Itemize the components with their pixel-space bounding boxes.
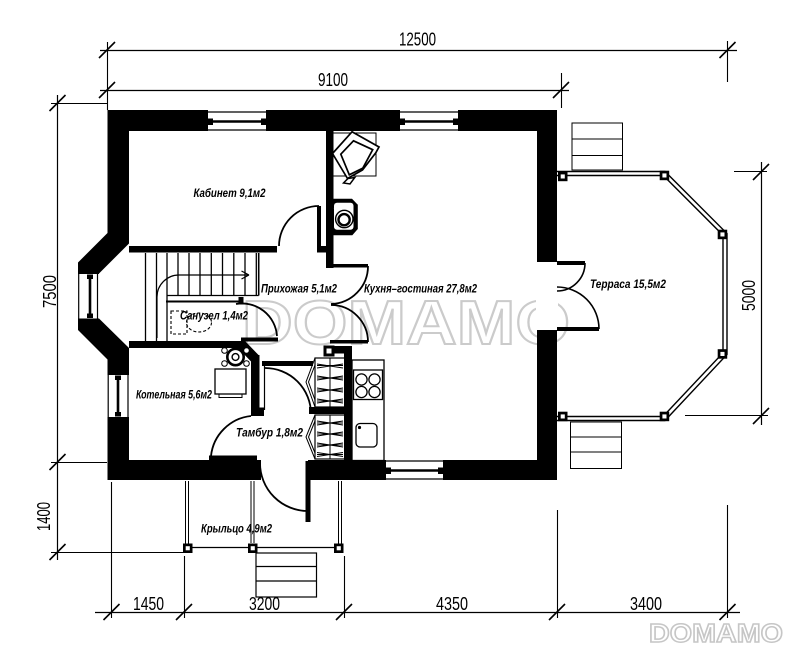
svg-text:Крыльцо 4,9м2: Крыльцо 4,9м2 (201, 524, 272, 536)
svg-text:Котельная 5,6м2: Котельная 5,6м2 (136, 390, 212, 402)
svg-text:4350: 4350 (436, 594, 468, 614)
svg-text:5000: 5000 (739, 280, 759, 311)
svg-text:1450: 1450 (133, 594, 164, 614)
svg-text:9100: 9100 (318, 70, 348, 90)
svg-text:Санузел 1,4м2: Санузел 1,4м2 (180, 311, 248, 323)
svg-text:DOMAMO: DOMAMO (242, 289, 570, 358)
svg-text:Кабинет 9,1м2: Кабинет 9,1м2 (194, 188, 267, 200)
svg-text:1400: 1400 (34, 502, 54, 531)
svg-text:7500: 7500 (40, 275, 60, 308)
svg-text:Кухня–гостиная 27,8м2: Кухня–гостиная 27,8м2 (364, 284, 477, 296)
svg-text:Тамбур 1,8м2: Тамбур 1,8м2 (236, 428, 304, 440)
svg-text:3400: 3400 (630, 594, 662, 614)
svg-text:12500: 12500 (399, 30, 436, 50)
svg-text:3200: 3200 (249, 594, 280, 614)
svg-text:DOMAMO: DOMAMO (649, 618, 783, 648)
svg-text:Терраса 15,5м2: Терраса 15,5м2 (590, 279, 667, 291)
svg-text:Прихожая 5,1м2: Прихожая 5,1м2 (261, 284, 337, 296)
